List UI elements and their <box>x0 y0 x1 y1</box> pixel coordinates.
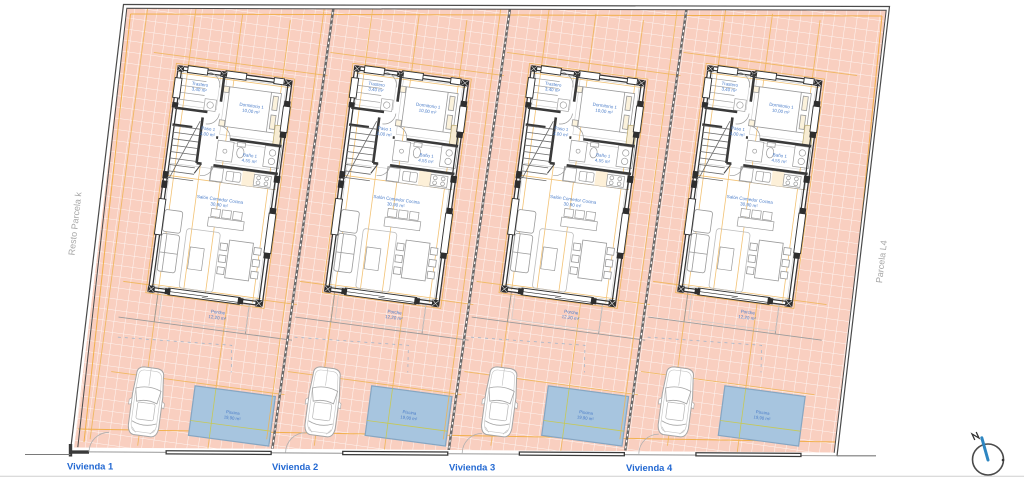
svg-text:Vivienda 4: Vivienda 4 <box>626 462 673 473</box>
svg-text:Vivienda 3: Vivienda 3 <box>449 462 495 473</box>
svg-text:Vivienda 2: Vivienda 2 <box>272 461 318 472</box>
svg-text:Vivienda 1: Vivienda 1 <box>67 461 113 472</box>
svg-text:Parcela L4: Parcela L4 <box>874 240 889 284</box>
svg-text:Resto Parcela k: Resto Parcela k <box>67 191 84 256</box>
